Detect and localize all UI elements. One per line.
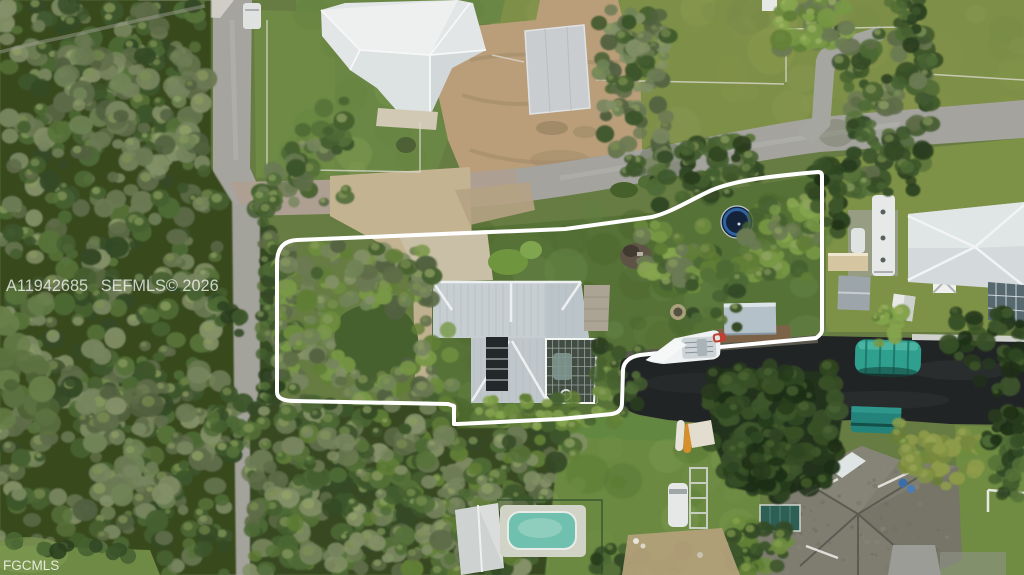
svg-text:FGCMLS: FGCMLS [3,558,59,573]
svg-text:A11942685 SEFMLS© 2026: A11942685 SEFMLS© 2026 [6,277,219,295]
